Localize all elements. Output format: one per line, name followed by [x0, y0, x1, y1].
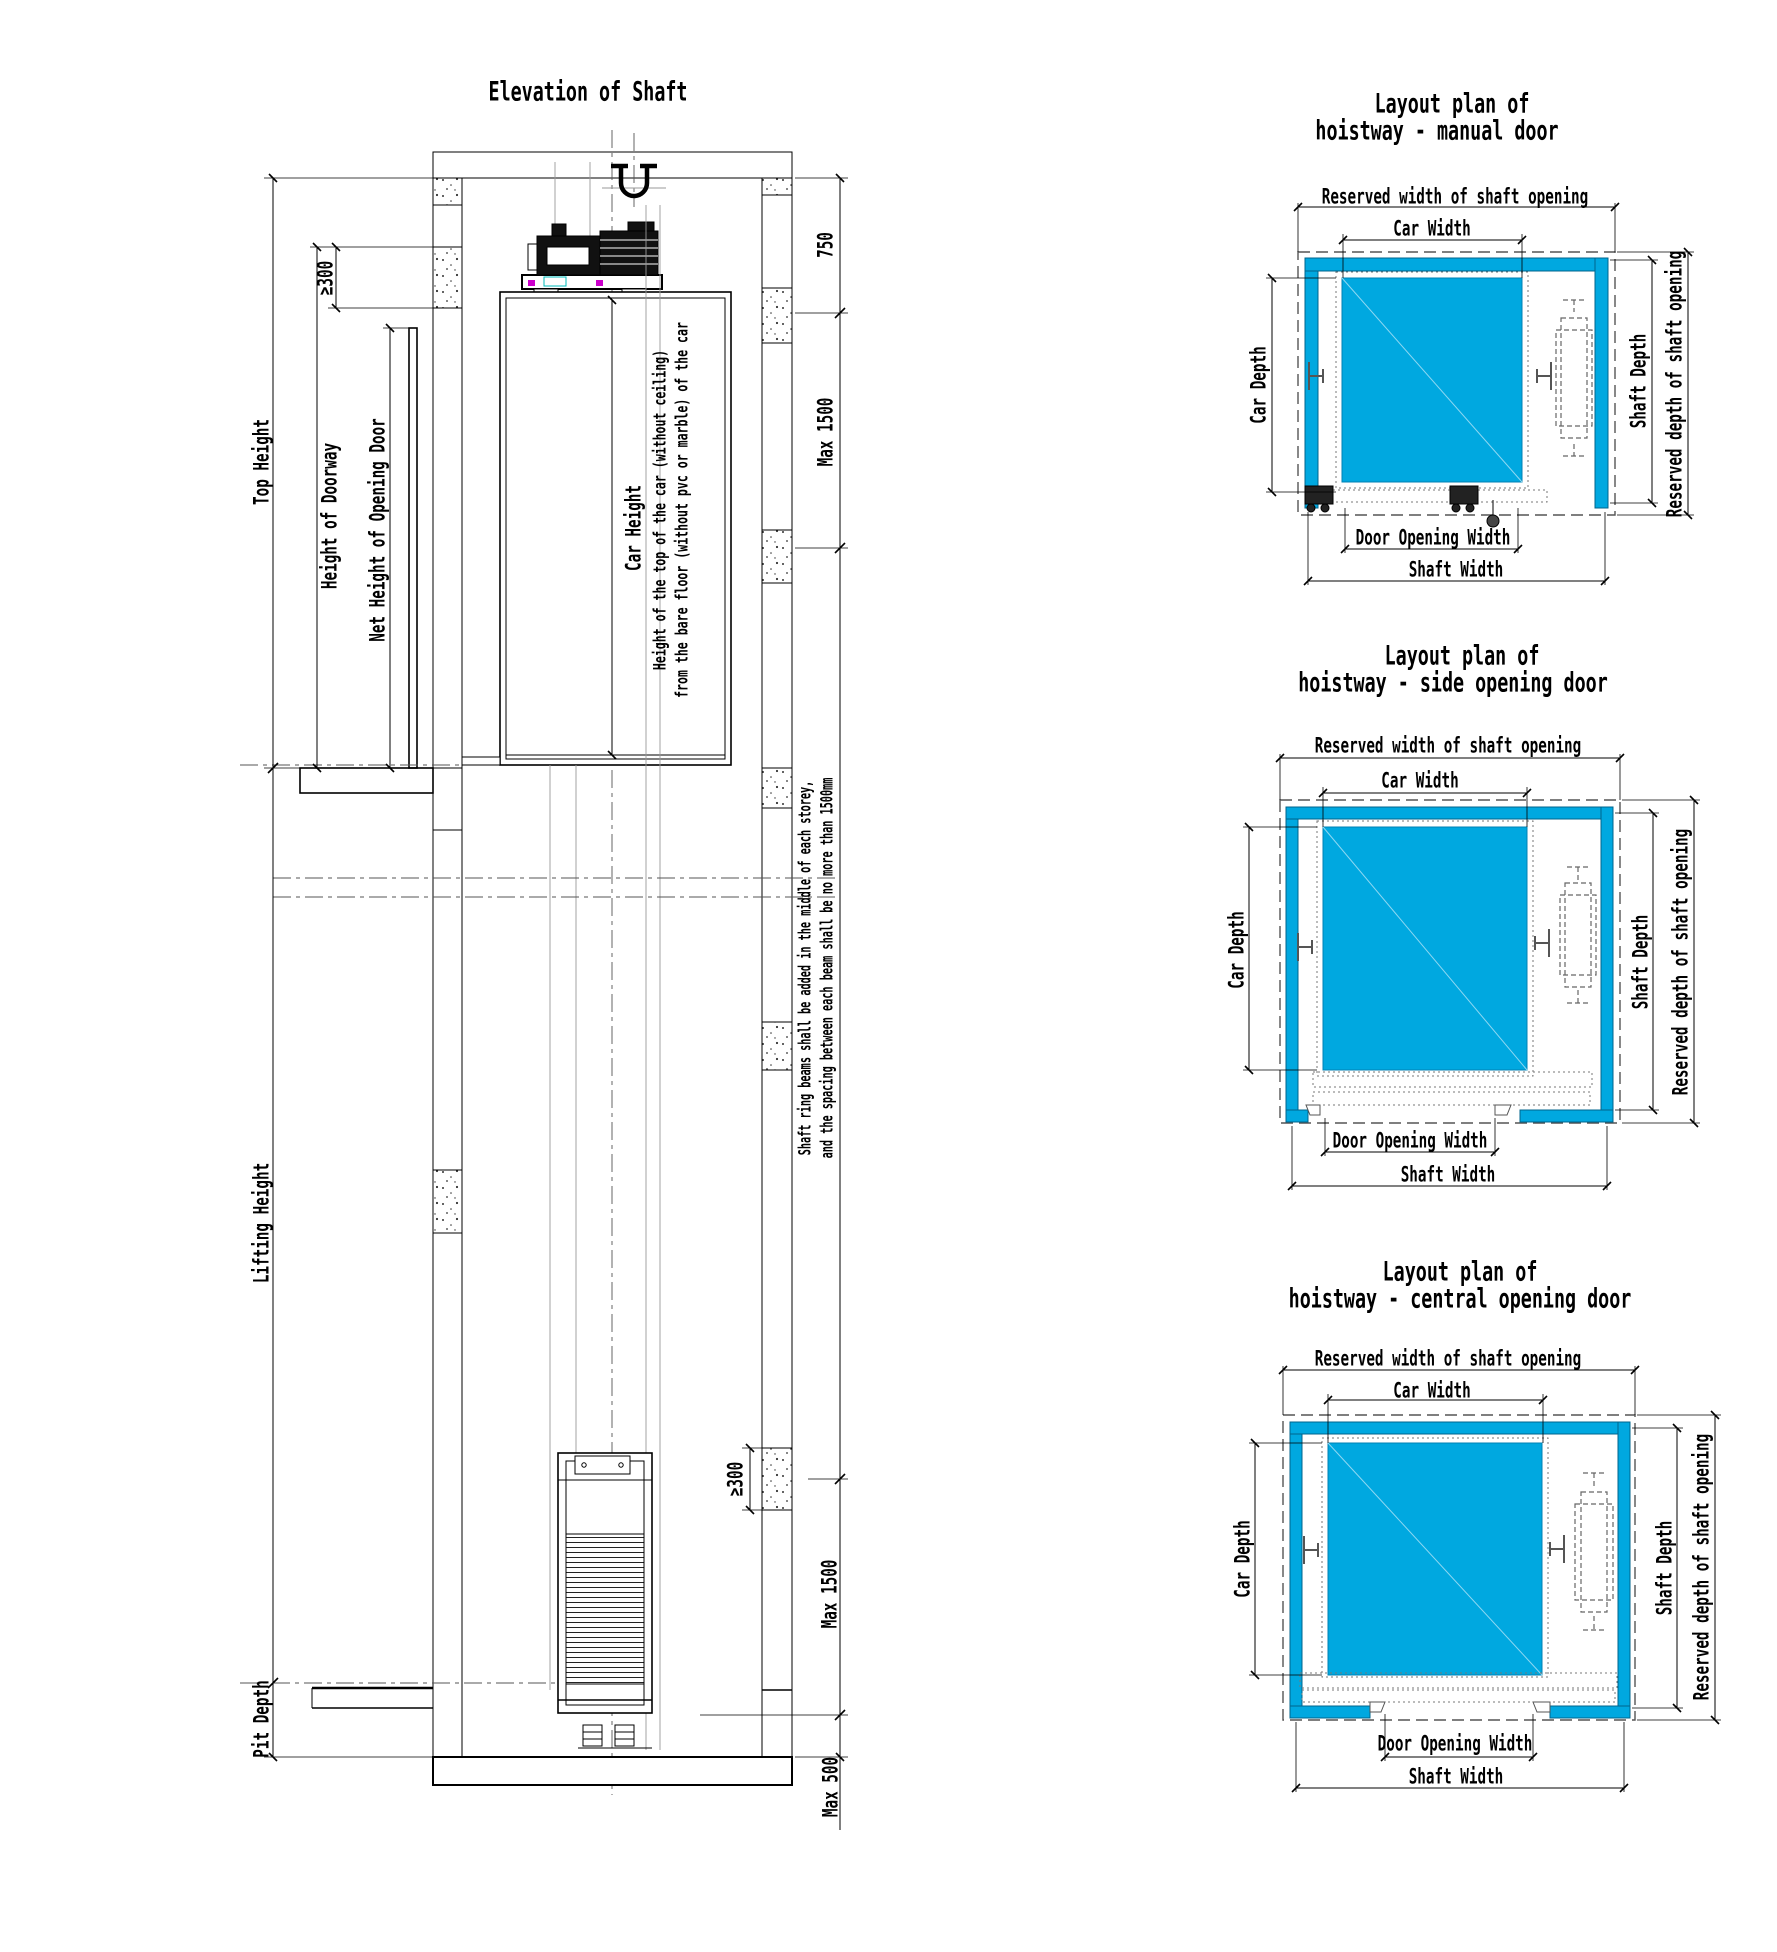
plan1-title-line1: Layout plan of — [1375, 91, 1530, 118]
plan2-title-line1: Layout plan of — [1385, 643, 1540, 670]
plan3-dim-door-opening-width: Door Opening Width — [1378, 1734, 1533, 1755]
plan1-dim-door-opening-width: Door Opening Width — [1356, 528, 1511, 549]
dim-lifting-height: Lifting Height — [252, 1163, 273, 1283]
guide-rail-right-icon — [1535, 929, 1549, 957]
counterweight-plan — [1575, 1473, 1613, 1630]
plan-central-opening-door — [1249, 1366, 1721, 1792]
dim-min-300-bottom: ≥300 — [726, 1462, 747, 1496]
elevation-title: Elevation of Shaft — [489, 79, 688, 106]
dim-max-1500-top: Max 1500 — [816, 398, 837, 467]
plan3-dim-car-depth: Car Depth — [1233, 1520, 1254, 1597]
dim-height-of-doorway: Height of Doorway — [320, 443, 341, 589]
counterweight-plan — [1556, 300, 1592, 456]
plan2-dim-door-opening-width: Door Opening Width — [1333, 1131, 1488, 1152]
plan3-dim-reserved-width: Reserved width of shaft opening — [1315, 1349, 1582, 1370]
plan1-dim-reserved-width: Reserved width of shaft opening — [1322, 187, 1589, 208]
plan1-title-line2: hoistway - manual door — [1315, 118, 1558, 145]
dim-car-height: Car Height — [624, 485, 645, 571]
car-height-note-line1: Height of the top of the car (without ce… — [653, 350, 670, 670]
dim-top-height: Top Height — [252, 419, 273, 505]
guide-rail-left-icon — [1304, 1536, 1318, 1564]
plan1-dim-reserved-depth: Reserved depth of shaft opening — [1665, 251, 1686, 518]
ring-beam-note-line1: Shaft ring beams shall be added in the m… — [798, 781, 815, 1156]
plan2-title-line2: hoistway - side opening door — [1298, 670, 1608, 697]
dim-net-height-of-opening-door: Net Height of Opening Door — [368, 418, 389, 642]
plan3-title-line1: Layout plan of — [1383, 1259, 1538, 1286]
plan2-dim-shaft-depth: Shaft Depth — [1631, 915, 1652, 1010]
car-height-note-line2: from the bare floor (without pvc or marb… — [675, 322, 692, 698]
landing-door-panel — [409, 328, 417, 768]
landing-slab — [300, 768, 462, 830]
dim-min-300-top: ≥300 — [316, 261, 337, 295]
traction-machine — [522, 222, 662, 298]
pit-structure — [312, 1688, 792, 1785]
guide-rail-right-icon — [1550, 1535, 1564, 1563]
plan3-dim-car-width: Car Width — [1393, 1381, 1470, 1402]
guide-rail-right-icon — [1537, 362, 1551, 390]
break-lines — [273, 878, 840, 897]
plan2-dim-shaft-width: Shaft Width — [1401, 1165, 1496, 1186]
plan3-dim-shaft-width: Shaft Width — [1409, 1767, 1504, 1788]
buffers — [578, 1725, 652, 1748]
dim-max-1500-bottom: Max 1500 — [820, 1560, 841, 1629]
manual-door-sill — [1305, 486, 1547, 527]
plan3-dim-reserved-depth: Reserved depth of shaft opening — [1692, 1434, 1713, 1701]
elevation-drawing — [240, 130, 848, 1830]
plan1-dim-car-depth: Car Depth — [1249, 346, 1270, 423]
plan1-dim-car-width: Car Width — [1393, 219, 1470, 240]
plan3-dim-shaft-depth: Shaft Depth — [1655, 1521, 1676, 1616]
dim-pit-depth: Pit Depth — [252, 1680, 273, 1757]
plan1-dim-shaft-width: Shaft Width — [1409, 560, 1504, 581]
counterweight — [558, 1453, 652, 1713]
counterweight-plan — [1560, 867, 1596, 1003]
plan1-dim-shaft-depth: Shaft Depth — [1629, 334, 1650, 429]
guide-rail-left-icon — [1298, 933, 1312, 961]
plan3-title-line2: hoistway - central opening door — [1289, 1286, 1632, 1313]
plan2-dim-reserved-width: Reserved width of shaft opening — [1315, 736, 1582, 757]
ring-beam-note-line2: and the spacing between each beam shall … — [820, 778, 837, 1159]
side-opening-door-panels — [1306, 1072, 1592, 1115]
dim-750: 750 — [816, 232, 837, 258]
plan2-dim-reserved-depth: Reserved depth of shaft opening — [1671, 829, 1692, 1096]
plan2-dim-car-width: Car Width — [1381, 771, 1458, 792]
elevator-shaft-drawing — [0, 0, 1777, 1952]
drawing-canvas: Elevation of Shaft Top Height Height of … — [0, 0, 1777, 1952]
dim-max-500: Max 500 — [821, 1757, 842, 1817]
plan2-dim-car-depth: Car Depth — [1227, 911, 1248, 988]
